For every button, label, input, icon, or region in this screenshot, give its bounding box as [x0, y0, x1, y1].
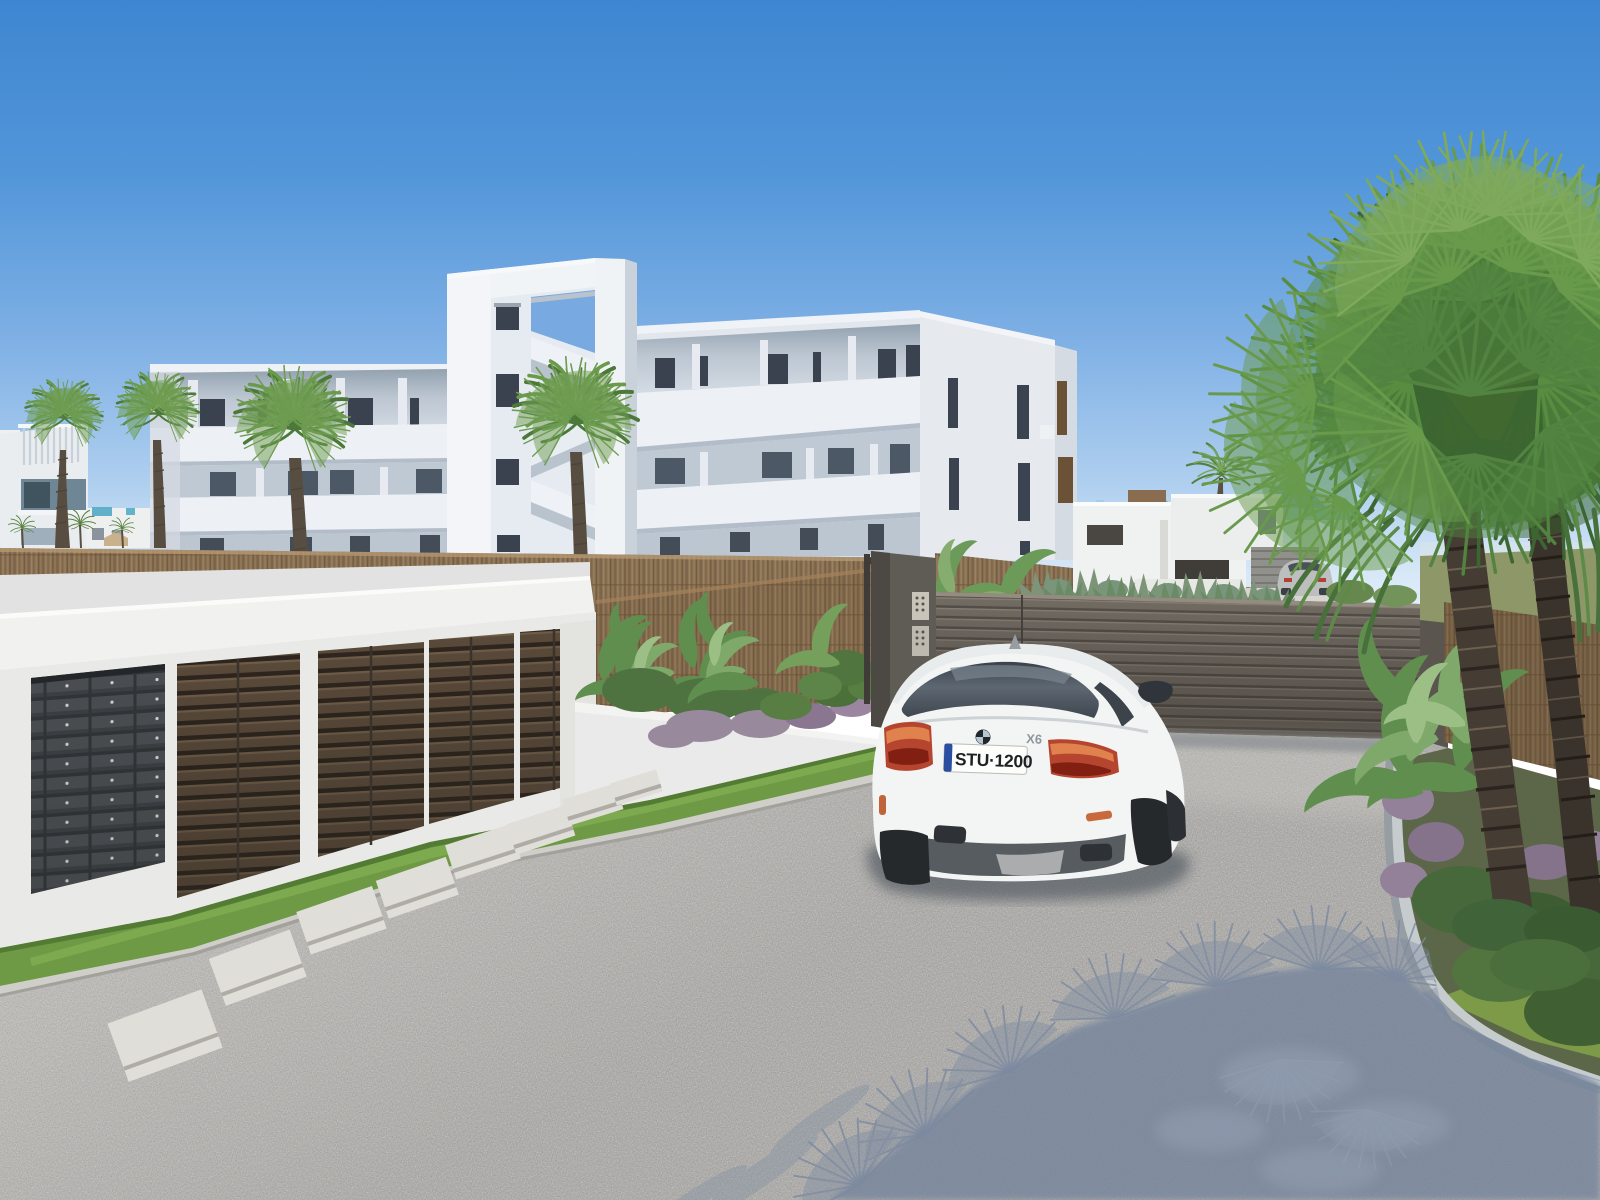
svg-text:STU·1200: STU·1200	[955, 749, 1034, 772]
svg-text:X6: X6	[1026, 731, 1043, 747]
